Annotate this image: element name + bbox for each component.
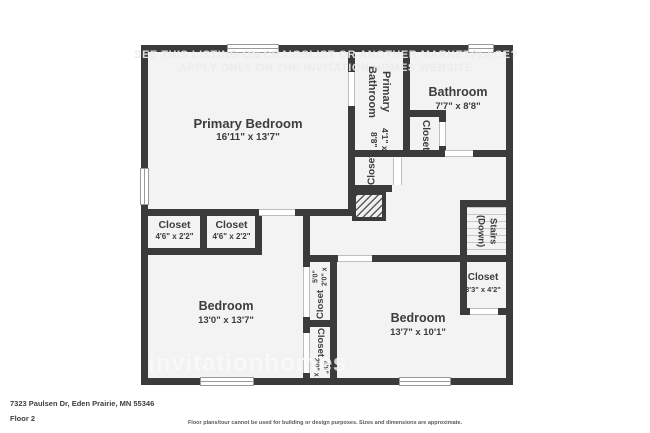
door-opening — [303, 267, 310, 317]
room-name: Closet — [418, 120, 431, 151]
room-dims: 16'11" x 13'7" — [148, 132, 348, 145]
room-dims: 4'6" x 2'2" — [148, 232, 201, 242]
room-dims: 13'7" x 10'1" — [337, 327, 499, 339]
room-dims: 7'7" x 8'8" — [410, 101, 506, 113]
room-dims: 4'6" x 2'2" — [207, 232, 256, 242]
window — [399, 377, 451, 386]
floor-plan-page: Primary Bedroom 16'11" x 13'7" Primary B… — [0, 0, 650, 433]
room-label-hall-closet: Closet — [353, 153, 392, 187]
room-label-closet-tall-upper: Closet 2'0" x 5'0" — [310, 263, 331, 319]
room-name: Closet — [366, 155, 379, 186]
wall — [310, 320, 337, 327]
door-opening — [445, 150, 473, 157]
wall — [460, 200, 467, 262]
room-name: Closet — [315, 290, 326, 319]
wall — [506, 45, 513, 385]
room-dims: 3'3" x 4'2" — [459, 285, 507, 294]
watermark-line1: SEE THIS LISTING ON CRAIGSLIST OR ANOTHE… — [110, 49, 542, 62]
room-dims: 2'0" x 5'0" — [312, 263, 330, 290]
room-name: Closet — [148, 219, 201, 232]
room-label-closet-b: Closet 4'6" x 2'2" — [207, 219, 256, 242]
room-label-bedroom-right: Bedroom 13'7" x 10'1" — [337, 311, 499, 339]
room-label-bathroom-closet: Closet — [410, 117, 439, 153]
room-name: Closet — [459, 272, 507, 285]
wall — [141, 248, 262, 255]
room-name: Bedroom — [148, 299, 304, 315]
hatched-chase — [352, 191, 386, 221]
room-name: Bedroom — [337, 311, 499, 327]
room-label-right-closet: Closet 3'3" x 4'2" — [459, 272, 507, 294]
door-opening — [393, 158, 402, 185]
anti-fraud-watermark: SEE THIS LISTING ON CRAIGSLIST OR ANOTHE… — [110, 49, 542, 74]
window — [140, 168, 149, 205]
watermark-line2: APPLY ONLY ON THE INVITATION HOMES WEBSI… — [110, 62, 542, 75]
room-label-primary-bedroom: Primary Bedroom 16'11" x 13'7" — [148, 116, 348, 145]
room-label-closet-a: Closet 4'6" x 2'2" — [148, 219, 201, 242]
property-address: 7323 Paulsen Dr, Eden Prairie, MN 55346 — [10, 399, 154, 408]
room-dims: 4'1" x 8'8" — [368, 126, 390, 154]
wall — [303, 255, 506, 262]
brand-watermark: invitationhomes — [148, 349, 347, 378]
door-opening — [348, 72, 355, 106]
room-name: Primary Bedroom — [148, 116, 348, 132]
room-name: Bathroom — [410, 85, 506, 101]
window — [200, 377, 254, 386]
door-opening — [338, 255, 372, 262]
room-label-bathroom: Bathroom 7'7" x 8'8" — [410, 85, 506, 113]
room-name: Stairs (Down) — [475, 207, 499, 256]
wall — [141, 378, 513, 385]
room-name: Closet — [207, 219, 256, 232]
door-opening — [259, 209, 295, 216]
disclaimer-text: Floor plans/tour cannot be used for buil… — [0, 420, 650, 426]
room-label-stairs: Stairs (Down) — [467, 207, 506, 256]
room-dims: 13'0" x 13'7" — [148, 315, 304, 327]
wall — [141, 209, 355, 216]
door-opening — [439, 122, 446, 146]
room-label-bedroom-left: Bedroom 13'0" x 13'7" — [148, 299, 304, 327]
